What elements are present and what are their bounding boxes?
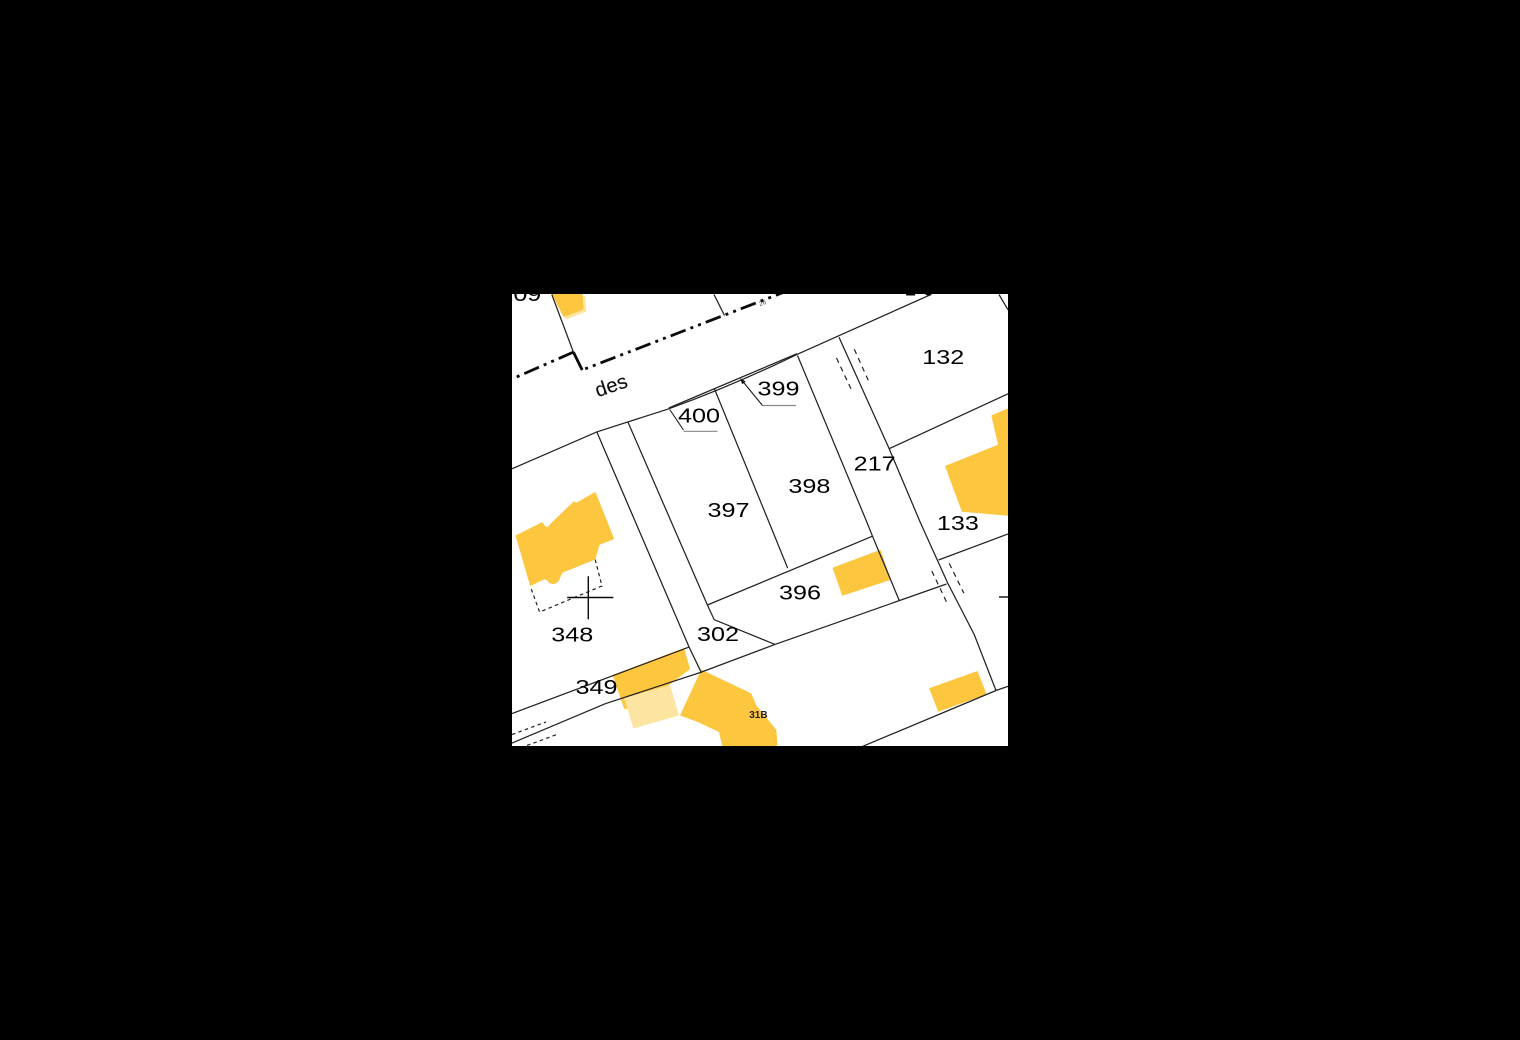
svg-text:6: 6 [923, 294, 934, 300]
svg-text:397: 397 [708, 500, 750, 522]
svg-text:399: 399 [758, 378, 800, 400]
svg-text:2: 2 [905, 294, 916, 301]
svg-text:133: 133 [937, 513, 979, 535]
svg-text:349: 349 [576, 676, 618, 698]
svg-text:217: 217 [854, 453, 896, 475]
svg-text:109: 109 [512, 294, 541, 306]
svg-text:302: 302 [697, 623, 739, 645]
svg-text:132: 132 [922, 347, 964, 369]
svg-text:398: 398 [788, 475, 830, 497]
svg-text:348: 348 [551, 624, 593, 646]
svg-text:400: 400 [678, 405, 720, 427]
svg-text:396: 396 [779, 582, 821, 604]
svg-text:31B: 31B [749, 709, 767, 720]
